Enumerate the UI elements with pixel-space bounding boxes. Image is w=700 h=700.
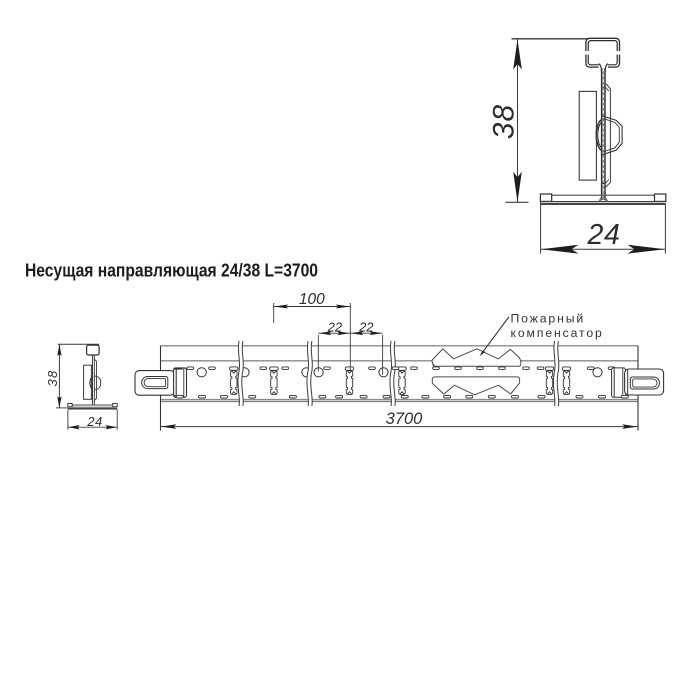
svg-text:22: 22 [327,319,343,334]
svg-text:Несущая направляющая 24/38 L=3: Несущая направляющая 24/38 L=3700 [25,260,318,280]
svg-text:38: 38 [45,370,60,387]
svg-text:3700: 3700 [386,410,424,428]
svg-text:22: 22 [358,319,374,334]
svg-text:38: 38 [488,104,521,139]
svg-text:24: 24 [587,219,621,251]
svg-text:Пожарный: Пожарный [511,311,586,325]
svg-text:100: 100 [299,291,325,308]
svg-text:24: 24 [86,414,102,429]
svg-text:компенсатор: компенсатор [511,326,604,340]
